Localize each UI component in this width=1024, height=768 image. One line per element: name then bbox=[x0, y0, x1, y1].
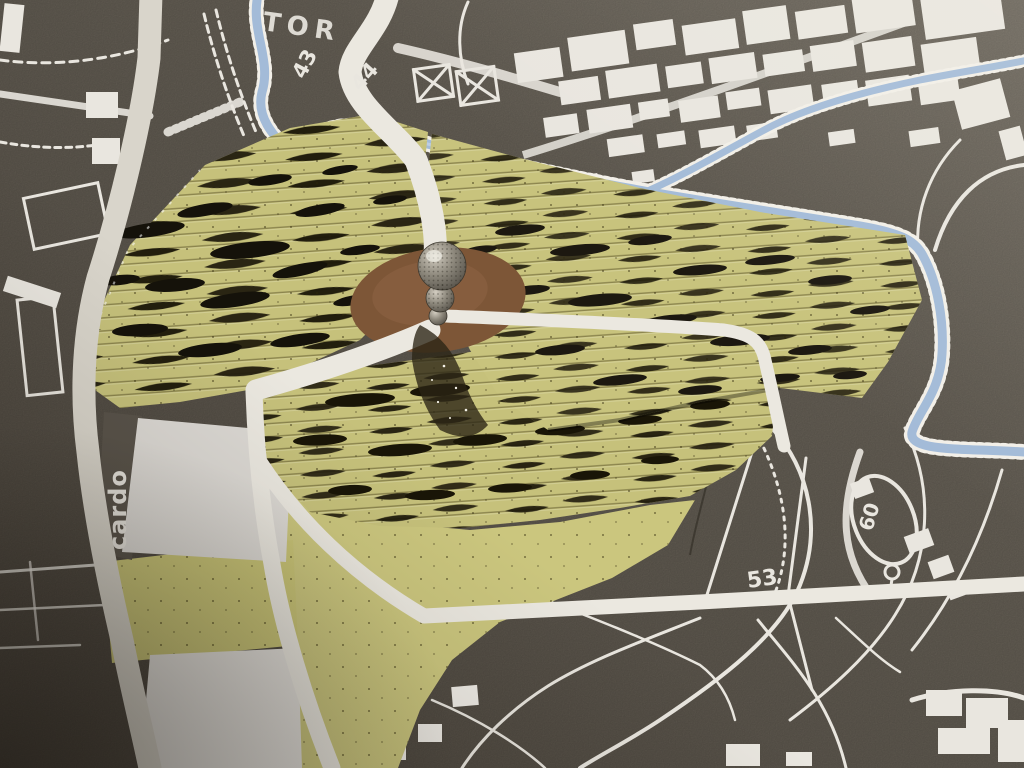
site-model-photo: TOR 43 44 cardo 53 60 bbox=[0, 0, 1024, 768]
corner-shading bbox=[0, 0, 1024, 768]
model-canvas: TOR 43 44 cardo 53 60 bbox=[0, 0, 1024, 768]
